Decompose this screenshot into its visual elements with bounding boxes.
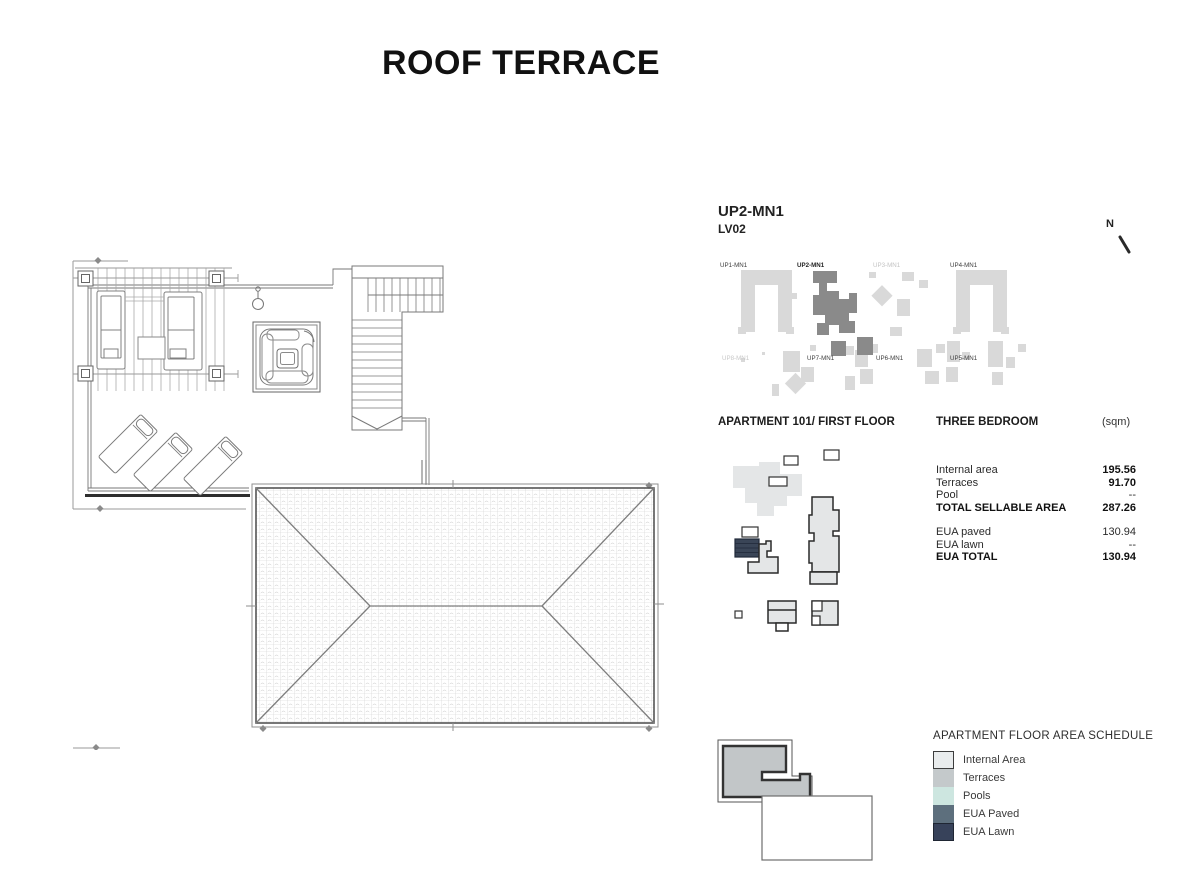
site-label-up5: UP5-MN1 [950,355,978,362]
area-value: 91.70 [1108,477,1136,490]
north-indicator: N [1098,218,1148,266]
key-internal-blob [733,462,802,516]
legend-swatch-terraces [933,769,954,787]
site-label-up2: UP2-MN1 [797,262,825,269]
site-label-up8: UP8-MN1 [722,355,750,362]
apartment-title: APARTMENT 101/ FIRST FLOOR [718,416,895,428]
site-building-highlighted [813,271,873,356]
legend-swatch-eua-lawn [933,823,954,841]
page-title: ROOF TERRACE [382,44,660,83]
pergola [73,268,238,391]
key-right-shape [809,497,839,584]
sofa-left [97,291,125,369]
legend-item-eua-lawn: EUA Lawn [933,823,1178,841]
roof-terrace-floor-plan [60,250,680,750]
table-row-total-sellable: TOTAL SELLABLE AREA 287.26 [936,502,1136,515]
jacuzzi [253,322,320,392]
coffee-table [138,337,165,359]
light-fixture-icon [253,287,264,310]
roof-key-terrace-shape [723,746,810,797]
legend-swatch-pools [933,787,954,805]
site-label-up7: UP7-MN1 [807,355,835,362]
area-label: Internal area [936,464,998,477]
area-value: 130.94 [1102,526,1136,539]
sofa-right [164,292,202,370]
legend-label: Pools [963,790,991,802]
legend-label: Terraces [963,772,1005,784]
legend-item-internal-area: Internal Area [933,751,1178,769]
table-row: Pool -- [936,489,1136,502]
legend-label: EUA Paved [963,808,1019,820]
site-key-plan: UP1-MN1 UP2-MN1 UP3-MN1 UP4-MN1 UP8-MN1 … [700,255,1040,403]
legend-item-terraces: Terraces [933,769,1178,787]
area-label: EUA paved [936,526,991,539]
site-label-up1: UP1-MN1 [720,262,748,269]
site-buildings-light [738,270,1026,396]
area-value: -- [1129,489,1136,502]
roof-key-diagram [705,732,885,872]
site-label-up6: UP6-MN1 [876,355,904,362]
level-code: LV02 [718,222,746,236]
area-label: EUA lawn [936,539,984,552]
legend-label: EUA Lawn [963,826,1014,838]
legend-item-pools: Pools [933,787,1178,805]
roof-vent-stub [422,460,426,484]
legend-item-eua-paved: EUA Paved [933,805,1178,823]
key-bottom-blocks [735,601,838,631]
apartment-bedroom-type: THREE BEDROOM [936,416,1038,428]
area-label: EUA TOTAL [936,551,998,564]
site-label-up3: UP3-MN1 [873,262,901,269]
hip-roof [246,460,664,731]
area-value: 287.26 [1102,502,1136,515]
roof-terrace-sheet: { "page": { "title": "ROOF TERRACE" }, "… [0,0,1200,893]
staircase [352,266,443,430]
area-value: 130.94 [1102,551,1136,564]
site-label-up4: UP4-MN1 [950,262,978,269]
legend-label: Internal Area [963,754,1025,766]
area-label: Terraces [936,477,978,490]
key-left-group [735,527,778,573]
legend-swatch-internal-area [933,751,954,769]
legend-title: APARTMENT FLOOR AREA SCHEDULE [933,730,1178,742]
area-value: -- [1129,539,1136,552]
table-row: Internal area 195.56 [936,464,1136,477]
lounge-chair-3 [183,436,242,495]
area-label: TOTAL SELLABLE AREA [936,502,1066,515]
floor-area-legend: APARTMENT FLOOR AREA SCHEDULE Internal A… [933,730,1178,841]
unit-code: UP2-MN1 [718,203,784,220]
north-label: N [1106,218,1114,230]
area-value: 195.56 [1102,464,1136,477]
table-row: Terraces 91.70 [936,477,1136,490]
apartment-key-diagram [710,440,895,665]
area-label: Pool [936,489,958,502]
table-row: EUA paved 130.94 [936,526,1136,539]
apartment-unit-suffix: (sqm) [1102,416,1130,428]
legend-swatch-eua-paved [933,805,954,823]
table-row-eua-total: EUA TOTAL 130.94 [936,551,1136,564]
sofa-shelf-lines [125,297,164,301]
table-row: EUA lawn -- [936,539,1136,552]
roof-key-roof-rect [762,796,872,860]
area-table: Internal area 195.56 Terraces 91.70 Pool… [936,464,1136,564]
